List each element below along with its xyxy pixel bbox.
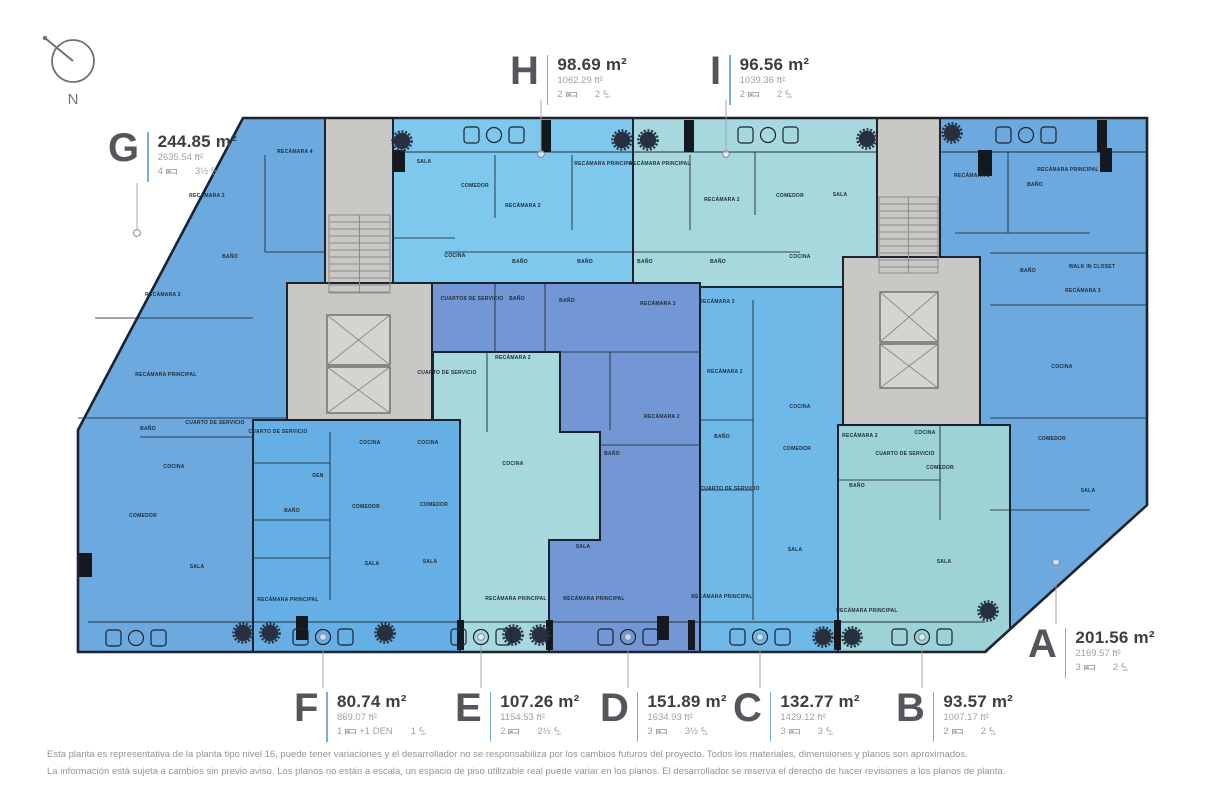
unit-area-m2: 201.56 m² — [1075, 629, 1154, 646]
balcony-divider — [684, 120, 694, 152]
room-label-H: BAÑO — [512, 258, 528, 265]
unit-bed-count: 2 — [740, 90, 745, 100]
room-label-A: COMEDOR — [1038, 436, 1066, 442]
leader-dot-E — [478, 634, 485, 641]
balcony-divider — [688, 620, 695, 650]
structural-column — [78, 553, 92, 577]
callout-divider-line — [547, 55, 549, 105]
unit-area-m2: 107.26 m² — [500, 693, 579, 710]
bed-icon — [748, 90, 759, 98]
room-label-G: RECÁMARA PRINCIPAL — [135, 371, 196, 378]
shower-icon — [701, 727, 710, 736]
unit-bath-count: 2 — [595, 90, 600, 100]
unit-callout-I[interactable]: I 96.56 m² 1039.36 ft² 2 2 — [710, 55, 809, 105]
unit-specs: 2 2 — [740, 90, 810, 100]
room-label-G: COMEDOR — [129, 513, 157, 519]
unit-letter: D — [600, 692, 628, 725]
room-label-A: BAÑO — [1020, 267, 1036, 274]
unit-bath-count: 3 — [818, 727, 823, 737]
room-label-E: COMEDOR — [420, 502, 448, 508]
callout-divider-line — [933, 692, 935, 742]
room-label-C: RECÁMARA 2 — [707, 368, 743, 375]
unit-bed-count: 4 — [158, 167, 163, 177]
room-label-H: BAÑO — [577, 258, 593, 265]
unit-specs: 3 2 — [1075, 663, 1154, 673]
unit-bath-count: 2 — [777, 90, 782, 100]
room-label-D: RECÁMARA PRINCIPAL — [563, 595, 624, 602]
room-label-G: CUARTO DE SERVICIO — [185, 420, 244, 426]
unit-callout-A[interactable]: A 201.56 m² 2169.57 ft² 3 2 — [1028, 628, 1155, 678]
room-label-B: CUARTO DE SERVICIO — [875, 451, 934, 457]
unit-bath-count: 2 — [1113, 663, 1118, 673]
room-label-I: COCINA — [789, 254, 810, 260]
shower-icon — [419, 727, 428, 736]
room-label-B: RECÁMARA 2 — [842, 432, 878, 439]
room-label-G: RECÁMARA 3 — [189, 192, 225, 199]
unit-area-ft2: 1039.36 ft² — [740, 76, 810, 86]
unit-bath-count: 1 — [411, 727, 416, 737]
unit-callout-G[interactable]: G 244.85 m² 2635.54 ft² 4 3½ — [108, 132, 237, 182]
unit-letter: C — [733, 692, 761, 725]
unit-bed-count: 2 — [943, 727, 948, 737]
unit-callout-H[interactable]: H 98.69 m² 1062.29 ft² 2 2 — [510, 55, 627, 105]
room-label-G: BAÑO — [222, 253, 238, 260]
unit-letter: A — [1028, 628, 1056, 661]
shower-icon — [603, 90, 612, 99]
unit-letter: H — [510, 55, 538, 88]
unit-callout-D[interactable]: D 151.89 m² 1634.93 ft² 3 3½ — [600, 692, 727, 742]
unit-area-ft2: 1634.93 ft² — [647, 713, 726, 723]
shower-icon — [826, 727, 835, 736]
room-label-I: COMEDOR — [776, 193, 804, 199]
balcony-divider — [541, 120, 551, 152]
callout-divider-line — [147, 132, 149, 182]
room-label-F: DEN — [312, 473, 323, 479]
unit-info: 80.74 m² 869.07 ft² 1 +1 DEN 1 — [337, 692, 428, 736]
room-label-A: RECÁMARA 2 — [954, 172, 990, 179]
bed-icon — [566, 90, 577, 98]
callout-divider-line — [637, 692, 639, 742]
room-label-A: RECÁMARA 3 — [1065, 287, 1101, 294]
room-label-B: COMEDOR — [926, 465, 954, 471]
shower-icon — [1121, 663, 1130, 672]
floor-plan-svg: RECÁMARA 4RECÁMARA 3BAÑORECÁMARA 2RECÁMA… — [0, 0, 1226, 800]
bed-icon — [345, 727, 356, 735]
leader-dot-H — [538, 151, 545, 158]
room-label-A: WALK IN CLOSET — [1069, 264, 1115, 270]
unit-area-m2: 151.89 m² — [647, 693, 726, 710]
unit-info: 96.56 m² 1039.36 ft² 2 2 — [740, 55, 810, 99]
unit-info: 201.56 m² 2169.57 ft² 3 2 — [1075, 628, 1154, 672]
room-label-A: RECÁMARA PRINCIPAL — [1037, 166, 1098, 173]
shower-icon — [989, 727, 998, 736]
shower-icon — [554, 727, 563, 736]
unit-area-ft2: 2635.54 ft² — [158, 153, 237, 163]
room-label-H: RECÁMARA PRINCIPAL — [574, 160, 635, 167]
unit-letter: G — [108, 132, 138, 165]
unit-area-m2: 96.56 m² — [740, 56, 810, 73]
room-label-D: BAÑO — [559, 297, 575, 304]
room-label-F: RECÁMARA PRINCIPAL — [257, 596, 318, 603]
unit-specs: 4 3½ — [158, 167, 237, 177]
disclaimer-line-2: La información está sujeta a cambios sin… — [47, 767, 1187, 778]
room-label-C: COCINA — [789, 404, 810, 410]
disclaimer-line-1: Esta planta es representativa de la plan… — [47, 750, 1187, 761]
room-label-H: COCINA — [444, 253, 465, 259]
unit-bed-count: 3 — [780, 727, 785, 737]
room-label-F: SALA — [365, 561, 380, 567]
room-label-D: BAÑO — [604, 450, 620, 457]
north-compass: N — [28, 28, 120, 116]
structural-column — [657, 616, 669, 640]
room-label-G: BAÑO — [140, 425, 156, 432]
unit-specs: 3 3 — [780, 727, 859, 737]
unit-bath-count: 3½ — [685, 727, 698, 737]
room-label-H: COMEDOR — [461, 183, 489, 189]
leader-dot-A — [1053, 559, 1060, 566]
room-label-C: CUARTO DE SERVICIO — [700, 486, 759, 492]
unit-extra-label: +1 DEN — [359, 727, 393, 737]
room-label-G: RECÁMARA 2 — [145, 291, 181, 298]
room-label-E: SALA — [423, 559, 438, 565]
unit-bed-count: 1 — [337, 727, 342, 737]
room-label-F: BAÑO — [284, 507, 300, 514]
unit-specs: 2 2½ — [500, 727, 579, 737]
unit-area-ft2: 1429.12 ft² — [780, 713, 859, 723]
unit-info: 93.57 m² 1007.17 ft² 2 2 — [943, 692, 1013, 736]
unit-bed-count: 3 — [647, 727, 652, 737]
unit-area-ft2: 1154.53 ft² — [500, 713, 579, 723]
compass-needle-icon — [45, 38, 73, 61]
bed-icon — [166, 167, 177, 175]
room-label-B: SALA — [937, 559, 952, 565]
unit-area-ft2: 1062.29 ft² — [557, 76, 627, 86]
shower-icon — [785, 90, 794, 99]
unit-info: 107.26 m² 1154.53 ft² 2 2½ — [500, 692, 579, 736]
room-label-B: COCINA — [914, 430, 935, 436]
unit-info: 151.89 m² 1634.93 ft² 3 3½ — [647, 692, 726, 736]
tree-icon — [980, 603, 996, 619]
room-label-I: RECÁMARA 2 — [704, 196, 740, 203]
unit-info: 132.77 m² 1429.12 ft² 3 3 — [780, 692, 859, 736]
callout-divider-line — [729, 55, 731, 105]
room-label-I: RECÁMARA PRINCIPAL — [629, 160, 690, 167]
room-label-C: RECÁMARA 3 — [699, 298, 735, 305]
unit-callout-C[interactable]: C 132.77 m² 1429.12 ft² 3 3 — [733, 692, 860, 742]
unit-letter: F — [294, 692, 317, 725]
callout-divider-line — [770, 692, 772, 742]
tree-icon — [640, 132, 656, 148]
unit-specs: 3 3½ — [647, 727, 726, 737]
compass-needle-tip-icon — [43, 36, 47, 40]
room-label-E: RECÁMARA 2 — [495, 354, 531, 361]
room-label-I: SALA — [833, 192, 848, 198]
leader-dot-G — [134, 230, 141, 237]
room-label-I: BAÑO — [637, 258, 653, 265]
room-label-D: BAÑO — [509, 295, 525, 302]
tree-icon — [235, 625, 251, 641]
callout-divider-line — [326, 692, 328, 742]
room-label-H: SALA — [417, 159, 432, 165]
unit-area-ft2: 869.07 ft² — [337, 713, 428, 723]
unit-specs: 1 +1 DEN 1 — [337, 727, 428, 737]
unit-area-m2: 132.77 m² — [780, 693, 859, 710]
unit-bed-count: 3 — [1075, 663, 1080, 673]
unit-letter: B — [896, 692, 924, 725]
room-label-D: COCINA — [502, 461, 523, 467]
room-label-D: RECÁMARA 2 — [644, 413, 680, 420]
room-label-E: COCINA — [417, 440, 438, 446]
room-label-D: RECÁMARA 3 — [640, 300, 676, 307]
room-label-F: CUARTO DE SERVICIO — [248, 429, 307, 435]
unit-letter: I — [710, 55, 720, 88]
unit-bath-count: 2½ — [537, 727, 550, 737]
unit-specs: 2 2 — [557, 90, 627, 100]
room-label-C: COMEDOR — [783, 446, 811, 452]
unit-callout-E[interactable]: E 107.26 m² 1154.53 ft² 2 2½ — [455, 692, 579, 742]
room-label-G: SALA — [190, 564, 205, 570]
unit-callout-B[interactable]: B 93.57 m² 1007.17 ft² 2 2 — [896, 692, 1013, 742]
unit-bed-count: 2 — [557, 90, 562, 100]
tree-icon — [262, 625, 278, 641]
compass-north-label: N — [68, 91, 79, 108]
structural-column — [393, 150, 405, 172]
room-label-C: SALA — [788, 547, 803, 553]
unit-area-m2: 93.57 m² — [943, 693, 1013, 710]
callout-divider-line — [1065, 628, 1067, 678]
room-label-A: BAÑO — [1027, 181, 1043, 188]
unit-info: 98.69 m² 1062.29 ft² 2 2 — [557, 55, 627, 99]
room-label-F: COMEDOR — [352, 504, 380, 510]
bed-icon — [508, 727, 519, 735]
leader-dot-B — [919, 634, 926, 641]
leader-dot-F — [320, 634, 327, 641]
room-label-C: RECÁMARA PRINCIPAL — [691, 593, 752, 600]
unit-area-ft2: 2169.57 ft² — [1075, 649, 1154, 659]
floorplan-canvas: RECÁMARA 4RECÁMARA 3BAÑORECÁMARA 2RECÁMA… — [0, 0, 1226, 800]
room-label-A: SALA — [1081, 488, 1096, 494]
leader-dot-C — [757, 634, 764, 641]
callout-divider-line — [490, 692, 492, 742]
unit-area-m2: 98.69 m² — [557, 56, 627, 73]
room-label-E: RECÁMARA PRINCIPAL — [485, 595, 546, 602]
tree-icon — [394, 133, 410, 149]
room-label-A: COCINA — [1051, 364, 1072, 370]
bed-icon — [789, 727, 800, 735]
room-label-G: RECÁMARA 4 — [277, 148, 313, 155]
structural-column — [1100, 148, 1112, 172]
unit-specs: 2 2 — [943, 727, 1013, 737]
room-label-B: RECÁMARA PRINCIPAL — [836, 607, 897, 614]
unit-area-m2: 244.85 m² — [158, 133, 237, 150]
leader-dot-I — [723, 151, 730, 158]
balcony-divider — [1097, 120, 1107, 152]
tree-icon — [815, 629, 831, 645]
unit-letter: E — [455, 692, 481, 725]
unit-F-region[interactable] — [253, 420, 460, 652]
balcony-divider — [834, 620, 841, 650]
room-label-G: COCINA — [163, 464, 184, 470]
unit-area-ft2: 1007.17 ft² — [943, 713, 1013, 723]
room-label-D: SALA — [576, 544, 591, 550]
unit-bath-count: 2 — [981, 727, 986, 737]
tree-icon — [859, 131, 875, 147]
bed-icon — [1084, 663, 1095, 671]
shower-icon — [211, 167, 220, 176]
structural-column — [296, 616, 308, 640]
unit-bath-count: 3½ — [195, 167, 208, 177]
unit-area-m2: 80.74 m² — [337, 693, 428, 710]
bed-icon — [952, 727, 963, 735]
tree-icon — [844, 629, 860, 645]
tree-icon — [532, 627, 548, 643]
unit-info: 244.85 m² 2635.54 ft² 4 3½ — [158, 132, 237, 176]
leader-dot-D — [625, 634, 632, 641]
tree-icon — [614, 132, 630, 148]
disclaimer: Esta planta es representativa de la plan… — [47, 750, 1187, 784]
room-label-I: BAÑO — [710, 258, 726, 265]
room-label-H: RECÁMARA 2 — [505, 202, 541, 209]
room-label-C: BAÑO — [714, 433, 730, 440]
tree-icon — [377, 625, 393, 641]
unit-bed-count: 2 — [500, 727, 505, 737]
room-label-D: CUARTOS DE SERVICIO — [441, 296, 504, 302]
room-label-F: COCINA — [359, 440, 380, 446]
room-label-E: CUARTO DE SERVICIO — [417, 370, 476, 376]
unit-callout-F[interactable]: F 80.74 m² 869.07 ft² 1 +1 DEN 1 — [294, 692, 428, 742]
room-label-B: BAÑO — [849, 482, 865, 489]
tree-icon — [944, 125, 960, 141]
bed-icon — [656, 727, 667, 735]
